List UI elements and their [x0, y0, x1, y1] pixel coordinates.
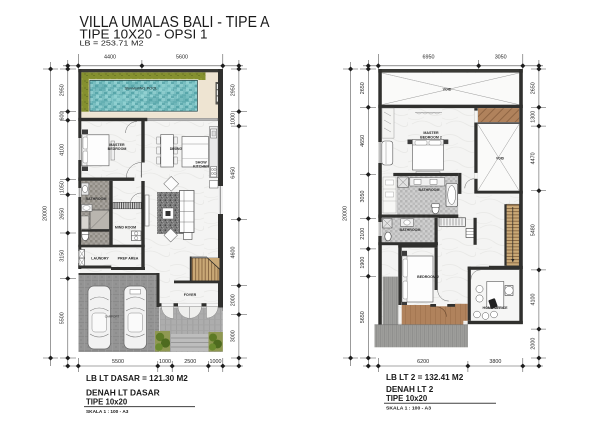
svg-text:BATHROOM: BATHROOM — [419, 188, 440, 192]
svg-text:2100: 2100 — [360, 228, 366, 240]
svg-text:KITCHEN: KITCHEN — [193, 165, 209, 169]
svg-text:DINING: DINING — [170, 147, 183, 151]
svg-text:2950: 2950 — [60, 84, 66, 96]
svg-text:4600: 4600 — [231, 247, 237, 259]
svg-text:4470: 4470 — [531, 152, 537, 164]
svg-text:1000: 1000 — [210, 359, 222, 365]
svg-text:6200: 6200 — [417, 359, 429, 365]
svg-text:TIPE 10x20: TIPE 10x20 — [86, 397, 128, 406]
svg-text:1000: 1000 — [231, 113, 237, 125]
svg-text:4100: 4100 — [531, 294, 537, 306]
svg-text:1900: 1900 — [360, 257, 366, 269]
svg-text:SKALA 1 : 100 - A3: SKALA 1 : 100 - A3 — [386, 405, 431, 410]
svg-text:BEDROOM: BEDROOM — [108, 147, 127, 151]
svg-text:2000: 2000 — [531, 338, 537, 350]
svg-text:3050: 3050 — [495, 55, 507, 61]
svg-text:2500: 2500 — [184, 359, 196, 365]
svg-text:2000: 2000 — [231, 294, 237, 306]
svg-text:20000: 20000 — [43, 206, 49, 221]
svg-text:3800: 3800 — [489, 359, 501, 365]
svg-text:PREP AREA: PREP AREA — [118, 257, 139, 261]
svg-text:5500: 5500 — [60, 312, 66, 324]
svg-text:SKALA 1 : 100 - A3: SKALA 1 : 100 - A3 — [86, 409, 129, 414]
svg-text:3000: 3000 — [231, 330, 237, 342]
svg-text:LB = 253.71 M2: LB = 253.71 M2 — [80, 38, 144, 47]
svg-text:5500: 5500 — [112, 359, 124, 365]
svg-text:DENAH LT 2: DENAH LT 2 — [386, 385, 434, 394]
svg-text:VOID: VOID — [496, 157, 504, 161]
svg-text:HOME OFFICE: HOME OFFICE — [483, 306, 509, 310]
svg-text:2650: 2650 — [60, 208, 66, 220]
svg-text:BEDROOM 2: BEDROOM 2 — [420, 135, 442, 139]
svg-text:BATHROOM: BATHROOM — [400, 228, 421, 232]
svg-text:LB LT 2 = 132.41 M2: LB LT 2 = 132.41 M2 — [386, 373, 464, 382]
svg-text:FOYER: FOYER — [184, 293, 197, 297]
svg-text:DENAH LT DASAR: DENAH LT DASAR — [86, 389, 160, 398]
svg-text:4400: 4400 — [104, 55, 116, 61]
svg-text:CARPORT: CARPORT — [105, 315, 120, 319]
svg-text:BEDROOM 2: BEDROOM 2 — [417, 275, 439, 279]
svg-text:1000: 1000 — [159, 359, 171, 365]
svg-text:2650: 2650 — [360, 82, 366, 94]
svg-text:6950: 6950 — [423, 55, 435, 61]
svg-text:3150: 3150 — [60, 250, 66, 262]
svg-text:LB LT DASAR = 121.30 M2: LB LT DASAR = 121.30 M2 — [86, 374, 188, 383]
svg-text:4650: 4650 — [360, 135, 366, 147]
svg-text:BATHROOM: BATHROOM — [86, 197, 107, 201]
svg-text:VOID: VOID — [443, 87, 452, 91]
svg-text:MIND ROOM: MIND ROOM — [115, 226, 136, 230]
svg-text:2950: 2950 — [231, 84, 237, 96]
svg-text:2650: 2650 — [531, 82, 537, 94]
svg-text:20000: 20000 — [343, 206, 349, 221]
svg-text:LAUNDRY: LAUNDRY — [91, 257, 109, 261]
svg-text:TIPE 10x20: TIPE 10x20 — [386, 394, 428, 403]
svg-text:5480: 5480 — [531, 224, 537, 236]
svg-text:5650: 5650 — [360, 311, 366, 323]
svg-text:4100: 4100 — [60, 144, 66, 156]
svg-text:3050: 3050 — [360, 191, 366, 203]
svg-text:5600: 5600 — [176, 55, 188, 61]
svg-text:600: 600 — [60, 112, 66, 121]
svg-text:1050: 1050 — [60, 181, 66, 193]
svg-text:6450: 6450 — [231, 167, 237, 179]
svg-text:1300: 1300 — [531, 111, 537, 123]
